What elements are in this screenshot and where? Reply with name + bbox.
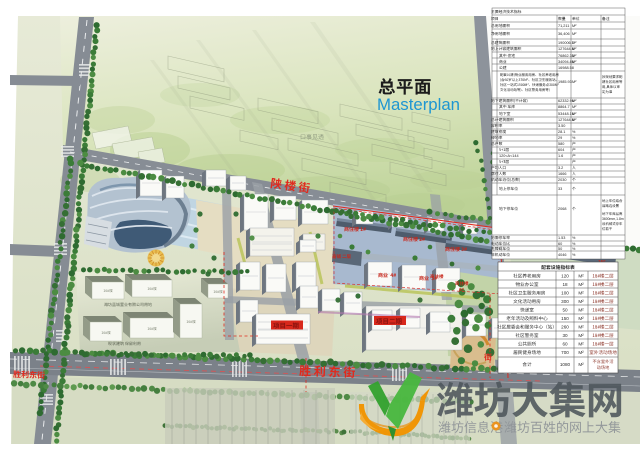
svg-text:29: 29 [558,136,562,140]
svg-text:50: 50 [558,247,562,251]
svg-text:Masterplan: Masterplan [377,95,460,114]
svg-text:M²: M² [572,105,577,109]
svg-text:M²: M² [578,291,584,296]
svg-text:71,211: 71,211 [558,24,569,28]
svg-text:M²: M² [578,362,584,367]
svg-text:M²: M² [578,282,584,287]
svg-text:M²: M² [578,274,584,279]
svg-text:120<A<144: 120<A<144 [499,154,519,158]
svg-text:16988.58: 16988.58 [558,66,574,70]
svg-text:18: 18 [562,282,568,287]
svg-text:260: 260 [561,325,569,330]
svg-text:M²: M² [572,60,577,64]
svg-text:300: 300 [561,299,569,304]
svg-text:M²: M² [572,24,577,28]
svg-text:60: 60 [558,242,562,246]
svg-text:604: 604 [558,148,564,152]
svg-text:M²: M² [572,41,577,45]
svg-text:2030: 2030 [558,178,566,182]
svg-text:M²: M² [578,342,584,347]
svg-text:M²: M² [572,118,577,122]
svg-text:1985.93: 1985.93 [558,80,572,84]
svg-text:60: 60 [562,342,568,347]
svg-text:100: 100 [561,291,569,296]
svg-text:M²: M² [578,333,584,338]
svg-text:M²: M² [578,350,584,355]
svg-text:1.6: 1.6 [558,154,563,158]
svg-text:700: 700 [561,350,569,355]
svg-text:30: 30 [562,333,568,338]
svg-text:120: 120 [561,274,569,279]
svg-text:1666: 1666 [558,172,566,176]
svg-text:M²: M² [572,112,577,116]
svg-text:8864.7: 8864.7 [558,105,570,109]
svg-text:3.50: 3.50 [558,124,565,128]
svg-text:28.1: 28.1 [558,130,565,134]
svg-text:M²: M² [572,99,577,103]
svg-text:M²: M² [572,80,577,84]
svg-text:580: 580 [558,142,564,146]
svg-text:3.2: 3.2 [558,166,563,170]
svg-text:1080: 1080 [560,362,571,367]
svg-text:50: 50 [562,308,568,313]
svg-text:M²: M² [578,308,584,313]
svg-text:36,406: 36,406 [558,32,570,36]
svg-text:M²: M² [572,32,577,36]
svg-text:6#: 6# [459,287,465,292]
svg-text:M²: M² [578,299,584,304]
svg-text:1.53: 1.53 [558,236,565,240]
svg-text:4046: 4046 [558,253,566,257]
svg-text:33: 33 [558,187,562,191]
svg-text:2068: 2068 [558,207,566,211]
svg-text:3600mm,1.8m: 3600mm,1.8m [602,217,624,221]
svg-text:150: 150 [561,316,569,321]
svg-text:M²: M² [572,54,577,58]
svg-text:M²: M² [578,316,584,321]
svg-text:M²: M² [578,325,584,330]
svg-text:M²: M² [572,47,577,51]
